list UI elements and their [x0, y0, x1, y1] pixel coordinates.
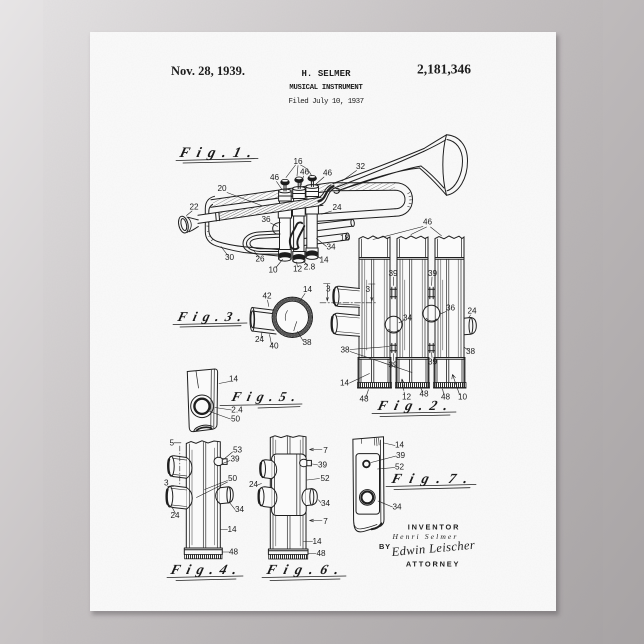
svg-text:48: 48 — [419, 390, 429, 399]
svg-text:48: 48 — [359, 395, 369, 404]
svg-text:MUSICAL INSTRUMENT: MUSICAL INSTRUMENT — [289, 84, 363, 92]
svg-text:46: 46 — [423, 218, 433, 227]
svg-text:ATTORNEY: ATTORNEY — [406, 560, 460, 569]
svg-text:16: 16 — [293, 157, 303, 166]
svg-text:Filed July 10, 1937: Filed July 10, 1937 — [288, 98, 363, 106]
svg-text:14: 14 — [227, 525, 237, 534]
svg-text:Fig.4.: Fig.4. — [168, 562, 245, 578]
svg-text:26: 26 — [255, 255, 265, 264]
svg-text:34: 34 — [235, 505, 245, 514]
svg-text:3: 3 — [366, 285, 371, 294]
svg-text:Fig.3.: Fig.3. — [175, 309, 250, 324]
svg-text:24: 24 — [467, 307, 477, 316]
svg-text:48: 48 — [441, 393, 451, 402]
svg-text:34: 34 — [326, 243, 336, 252]
svg-text:7: 7 — [323, 517, 328, 526]
svg-text:BY: BY — [379, 542, 391, 551]
svg-text:24: 24 — [255, 335, 265, 344]
svg-text:39: 39 — [230, 455, 240, 464]
svg-text:36: 36 — [261, 215, 271, 224]
svg-text:46: 46 — [270, 173, 280, 182]
svg-text:3: 3 — [326, 285, 331, 294]
svg-text:34: 34 — [403, 314, 413, 323]
svg-text:H. SELMER: H. SELMER — [301, 69, 351, 79]
svg-text:14: 14 — [229, 375, 239, 384]
svg-text:7: 7 — [323, 446, 328, 455]
svg-text:50: 50 — [228, 474, 238, 483]
svg-text:46: 46 — [300, 168, 310, 177]
svg-text:14: 14 — [319, 256, 329, 265]
svg-text:48: 48 — [229, 548, 239, 557]
svg-text:48: 48 — [316, 549, 326, 558]
svg-text:2.4: 2.4 — [231, 406, 243, 415]
svg-text:50: 50 — [231, 415, 241, 424]
svg-text:34: 34 — [321, 499, 331, 508]
svg-text:24: 24 — [170, 511, 180, 520]
svg-text:12: 12 — [402, 393, 412, 402]
svg-text:12: 12 — [293, 265, 303, 274]
svg-text:39: 39 — [388, 269, 398, 278]
svg-text:42: 42 — [262, 292, 272, 301]
svg-text:52: 52 — [395, 463, 405, 472]
svg-text:38: 38 — [466, 347, 476, 356]
svg-text:Fig.5.: Fig.5. — [229, 389, 304, 404]
svg-text:36: 36 — [446, 304, 456, 313]
svg-text:39: 39 — [396, 451, 406, 460]
svg-text:46: 46 — [323, 169, 333, 178]
svg-text:53: 53 — [233, 446, 243, 455]
svg-text:Nov. 28, 1939.: Nov. 28, 1939. — [171, 64, 245, 78]
svg-text:39: 39 — [428, 269, 438, 278]
svg-text:5: 5 — [170, 439, 175, 448]
svg-text:14: 14 — [340, 379, 350, 388]
svg-text:39: 39 — [318, 461, 328, 470]
svg-text:24: 24 — [332, 203, 342, 212]
svg-text:14: 14 — [395, 441, 405, 450]
svg-text:Fig.6.: Fig.6. — [264, 562, 347, 578]
svg-text:2,181,346: 2,181,346 — [417, 62, 471, 77]
svg-text:14: 14 — [312, 537, 322, 546]
svg-text:39: 39 — [428, 358, 438, 367]
svg-text:38: 38 — [302, 338, 312, 347]
svg-text:24: 24 — [249, 480, 259, 489]
svg-text:38: 38 — [340, 346, 350, 355]
svg-text:34: 34 — [392, 503, 402, 512]
svg-text:52: 52 — [320, 474, 330, 483]
svg-text:INVENTOR: INVENTOR — [408, 523, 460, 532]
svg-text:32: 32 — [356, 162, 366, 171]
svg-text:30: 30 — [225, 253, 235, 262]
svg-text:3: 3 — [164, 479, 169, 488]
svg-text:14: 14 — [303, 285, 313, 294]
svg-text:22: 22 — [189, 203, 199, 212]
svg-text:2.8: 2.8 — [304, 263, 316, 272]
svg-text:20: 20 — [217, 184, 227, 193]
svg-text:18: 18 — [340, 234, 350, 243]
